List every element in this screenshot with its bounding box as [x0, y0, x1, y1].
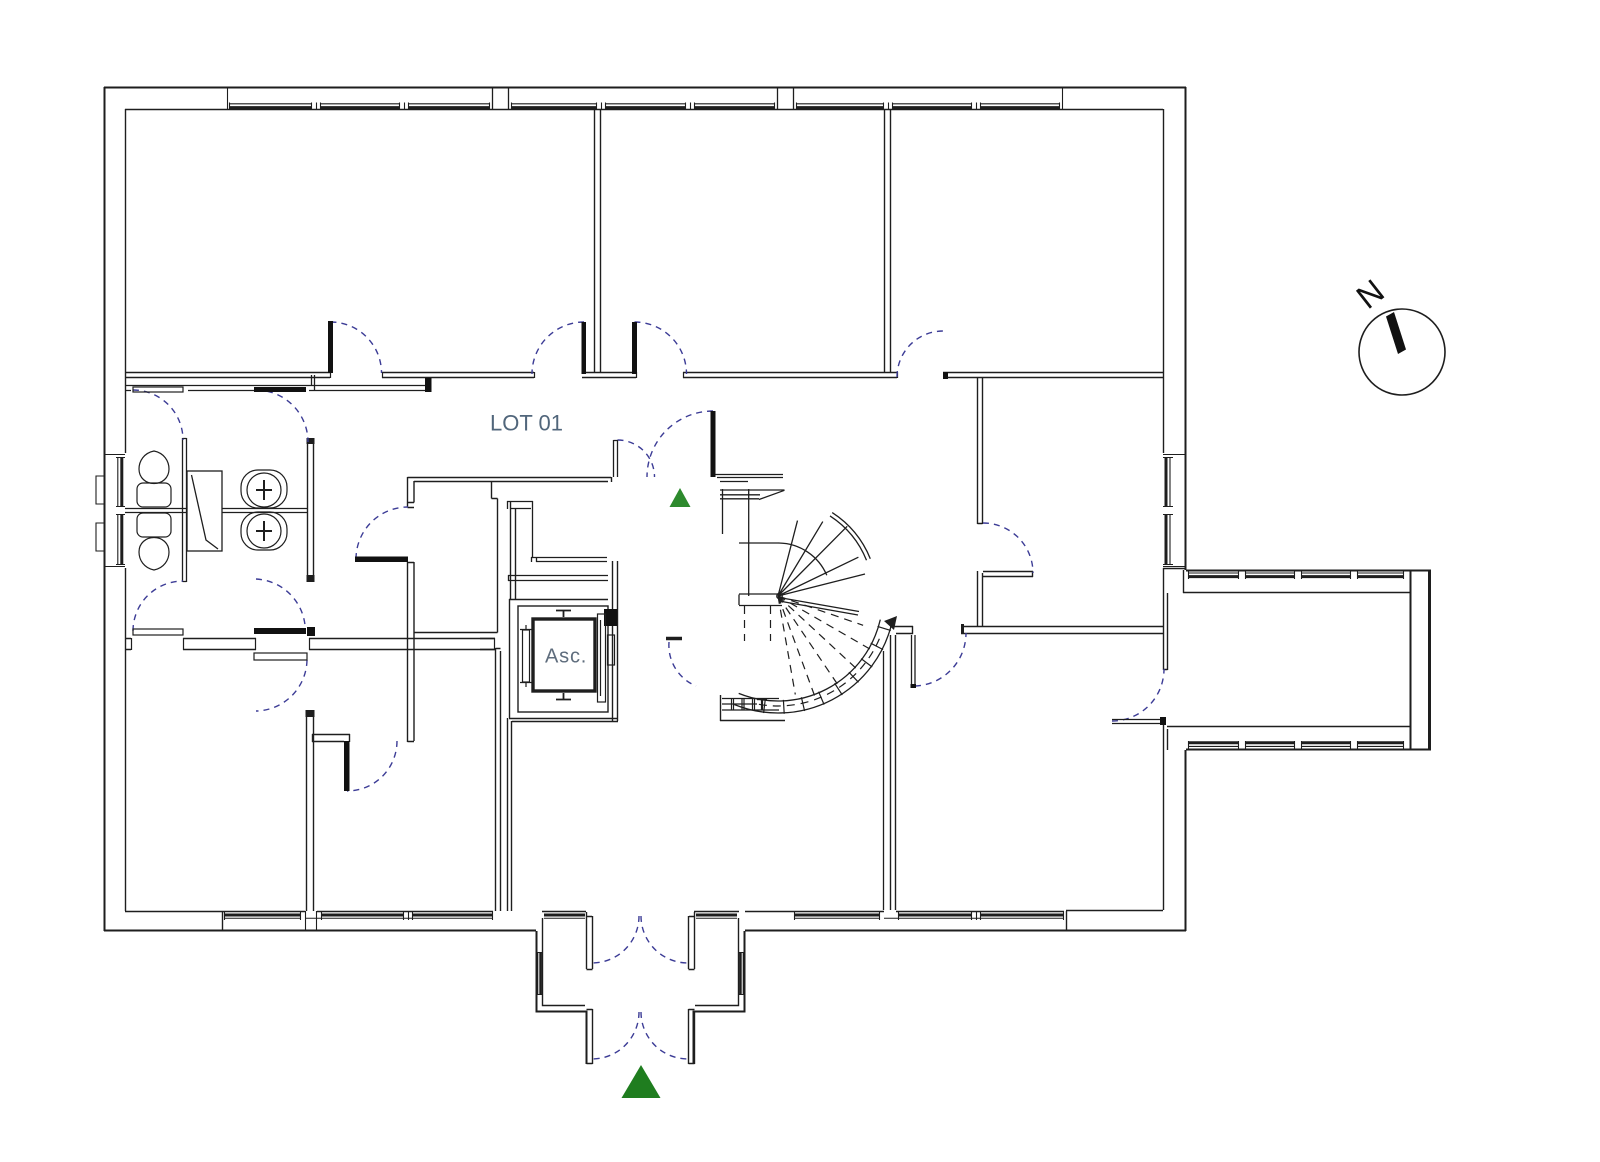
- svg-text:Asc.: Asc.: [545, 646, 587, 668]
- svg-text:N: N: [1349, 272, 1391, 316]
- svg-text:LOT 01: LOT 01: [490, 411, 563, 436]
